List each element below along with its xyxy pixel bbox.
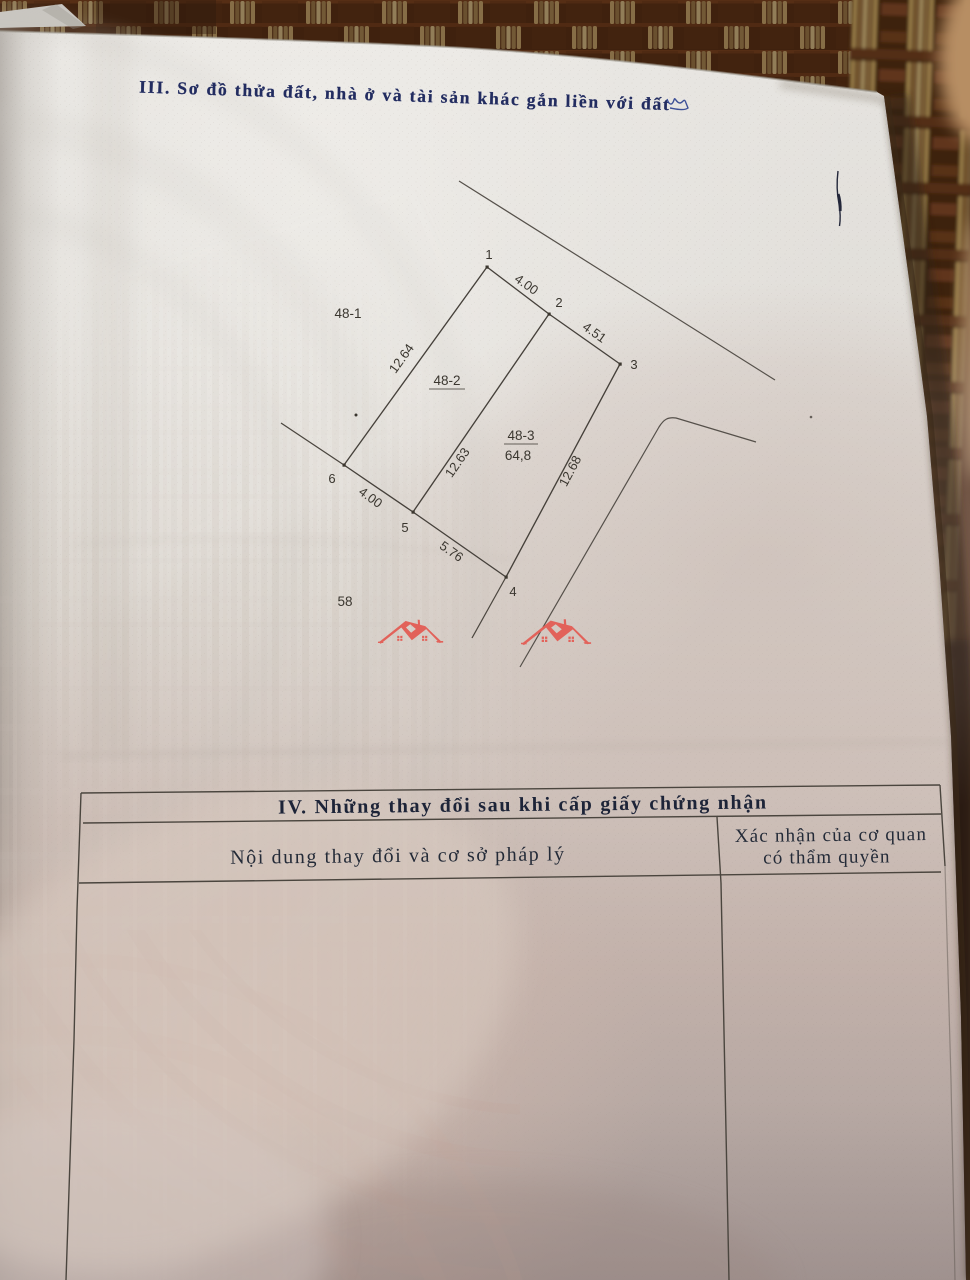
svg-text:3: 3	[630, 357, 637, 372]
svg-text:48-2: 48-2	[433, 373, 460, 388]
svg-text:Nội dung thay đổi và cơ sở phá: Nội dung thay đổi và cơ sở pháp lý	[230, 843, 566, 869]
svg-text:48-1: 48-1	[334, 306, 361, 321]
svg-text:2: 2	[555, 295, 562, 310]
svg-text:5: 5	[401, 520, 408, 535]
svg-text:1: 1	[485, 247, 492, 262]
svg-text:6: 6	[328, 471, 335, 486]
svg-text:Xác nhận của cơ quan: Xác nhận của cơ quan	[735, 824, 928, 847]
svg-text:64,8: 64,8	[505, 448, 531, 463]
svg-text:58: 58	[337, 594, 352, 609]
svg-text:48-3: 48-3	[507, 428, 534, 443]
svg-text:có thẩm quyền: có thẩm quyền	[763, 846, 891, 868]
svg-text:4: 4	[509, 584, 516, 599]
